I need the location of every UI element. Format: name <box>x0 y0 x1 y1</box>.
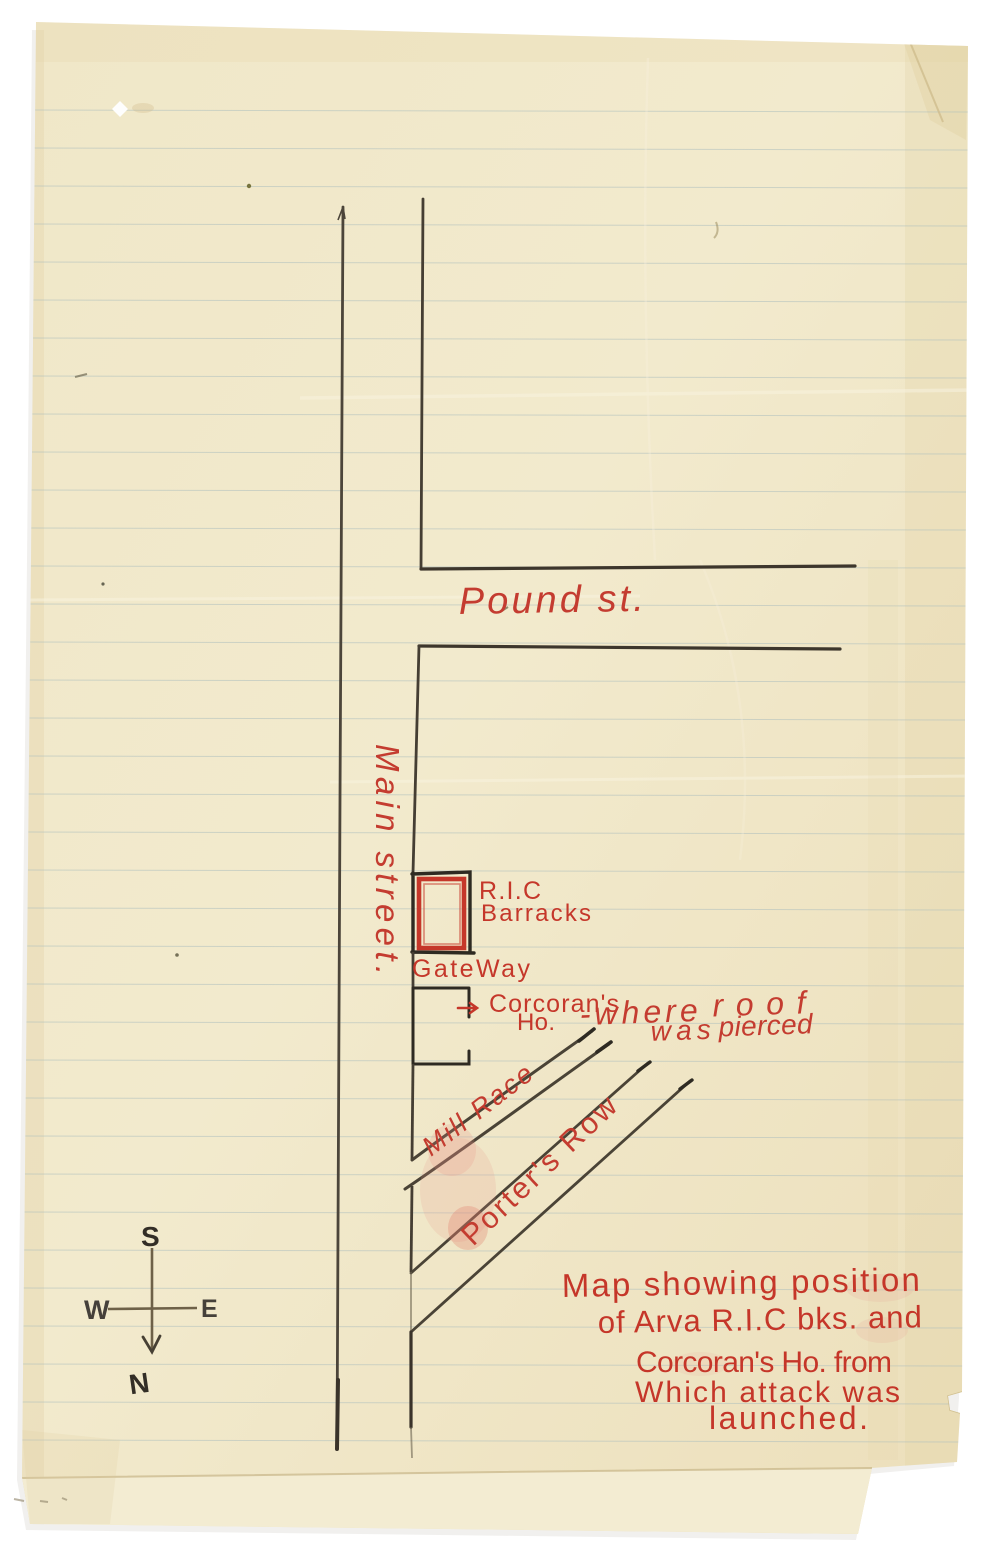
svg-text:N: N <box>127 1367 151 1401</box>
svg-text:Map showing position: Map showing position <box>561 1261 920 1304</box>
svg-text:S: S <box>141 1221 160 1252</box>
svg-text:of Arva R.I.C bks. and: of Arva R.I.C bks. and <box>598 1299 923 1340</box>
svg-text:E: E <box>201 1295 218 1323</box>
svg-text:launched.: launched. <box>709 1400 868 1436</box>
svg-text:Main street.: Main street. <box>369 744 406 975</box>
svg-text:W: W <box>84 1295 110 1325</box>
svg-text:GateWay: GateWay <box>412 955 531 983</box>
svg-text:Ho.: Ho. <box>517 1009 555 1036</box>
svg-text:Corcoran's Ho. from: Corcoran's Ho. from <box>636 1346 892 1379</box>
